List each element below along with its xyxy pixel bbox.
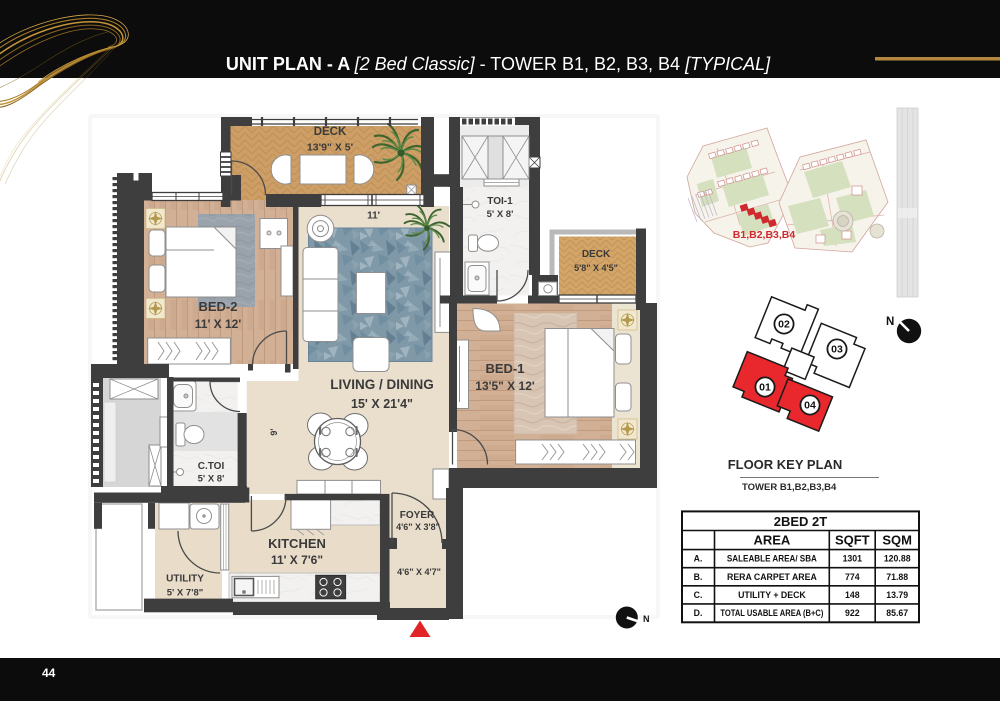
svg-text:5' X 7'8": 5' X 7'8" xyxy=(167,588,204,599)
svg-text:SQM: SQM xyxy=(882,533,912,548)
svg-text:DECK: DECK xyxy=(582,249,611,260)
svg-text:UTILITY + DECK: UTILITY + DECK xyxy=(738,590,806,600)
svg-text:15' X 21'4": 15' X 21'4" xyxy=(351,397,413,411)
svg-text:03: 03 xyxy=(831,344,843,356)
svg-text:C.TOI: C.TOI xyxy=(198,461,225,472)
svg-text:BED-1: BED-1 xyxy=(485,361,524,376)
svg-text:RERA CARPET AREA: RERA CARPET AREA xyxy=(727,572,817,582)
svg-text:SQFT: SQFT xyxy=(835,533,870,548)
svg-text:04: 04 xyxy=(804,400,816,412)
svg-text:120.88: 120.88 xyxy=(884,554,911,564)
svg-text:TOWER B1,B2,B3,B4: TOWER B1,B2,B3,B4 xyxy=(742,482,837,493)
svg-text:KITCHEN: KITCHEN xyxy=(268,536,326,551)
svg-text:4'6" X 3'8": 4'6" X 3'8" xyxy=(396,522,440,532)
svg-text:13.79: 13.79 xyxy=(886,590,908,600)
svg-text:11': 11' xyxy=(367,211,380,222)
svg-text:A.: A. xyxy=(694,554,703,564)
svg-text:1301: 1301 xyxy=(843,554,863,564)
svg-text:TOI-1: TOI-1 xyxy=(487,196,513,207)
svg-text:FOYER: FOYER xyxy=(400,510,435,521)
svg-text:11' X 12': 11' X 12' xyxy=(195,317,242,331)
svg-text:9': 9' xyxy=(269,428,279,435)
svg-text:TOTAL USABLE AREA (B+C): TOTAL USABLE AREA (B+C) xyxy=(720,608,823,618)
svg-text:2BED 2T: 2BED 2T xyxy=(774,514,828,529)
svg-text:FLOOR KEY PLAN: FLOOR KEY PLAN xyxy=(728,457,843,472)
svg-text:02: 02 xyxy=(778,319,790,331)
svg-text:AREA: AREA xyxy=(753,533,790,548)
svg-text:B.: B. xyxy=(694,572,703,582)
svg-text:N: N xyxy=(643,614,650,624)
svg-text:UNIT PLAN - A [2 Bed Classic]: UNIT PLAN - A [2 Bed Classic] - TOWER B1… xyxy=(226,54,771,74)
svg-text:44: 44 xyxy=(42,666,56,680)
svg-text:5'8" X 4'5": 5'8" X 4'5" xyxy=(574,263,618,273)
svg-text:13'5" X 12': 13'5" X 12' xyxy=(475,379,535,393)
svg-text:4'6" X 4'7": 4'6" X 4'7" xyxy=(397,567,441,577)
svg-text:D.: D. xyxy=(694,608,703,618)
svg-text:148: 148 xyxy=(845,590,860,600)
svg-text:SALEABLE AREA/ SBA: SALEABLE AREA/ SBA xyxy=(727,554,818,564)
svg-text:13'9" X 5': 13'9" X 5' xyxy=(307,142,353,154)
svg-text:774: 774 xyxy=(845,572,860,582)
svg-text:01: 01 xyxy=(759,382,771,394)
svg-text:5' X 8': 5' X 8' xyxy=(198,474,225,485)
svg-text:BED-2: BED-2 xyxy=(198,299,237,314)
svg-text:B1,B2,B3,B4: B1,B2,B3,B4 xyxy=(733,229,796,241)
svg-text:DECK: DECK xyxy=(314,126,347,138)
svg-text:922: 922 xyxy=(845,608,860,618)
svg-text:UTILITY: UTILITY xyxy=(166,574,204,585)
svg-text:N: N xyxy=(886,316,894,328)
svg-text:71.88: 71.88 xyxy=(886,572,908,582)
svg-text:5' X 8': 5' X 8' xyxy=(487,209,514,220)
svg-text:85.67: 85.67 xyxy=(886,608,908,618)
svg-text:11' X 7'6": 11' X 7'6" xyxy=(271,553,323,567)
svg-text:C.: C. xyxy=(694,590,703,600)
svg-text:LIVING / DINING: LIVING / DINING xyxy=(330,377,434,392)
